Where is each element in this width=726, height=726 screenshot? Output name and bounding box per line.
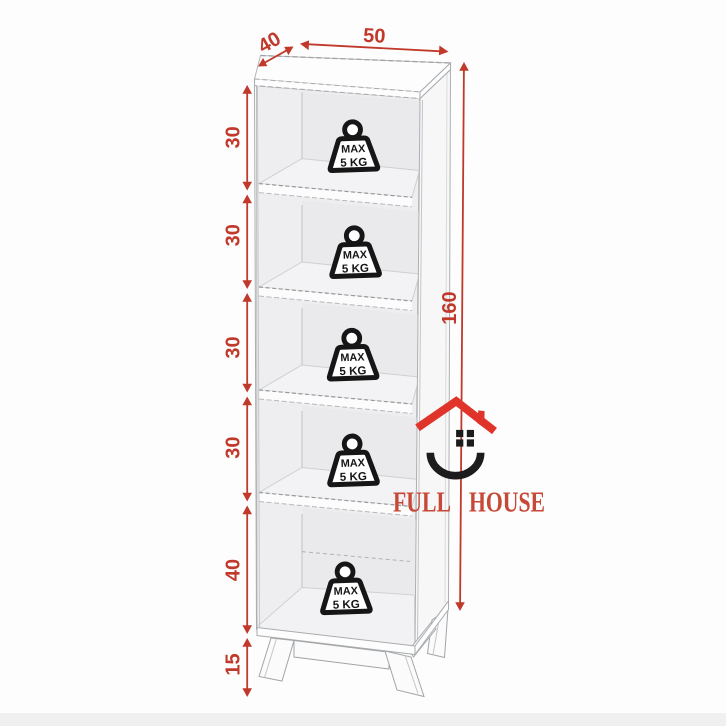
svg-text:MAX: MAX [333, 585, 358, 598]
svg-text:30: 30 [223, 436, 245, 458]
svg-text:40: 40 [223, 559, 245, 581]
svg-text:5 KG: 5 KG [339, 364, 366, 378]
svg-text:MAX: MAX [340, 351, 365, 364]
svg-text:FULL: FULL [393, 488, 451, 519]
svg-text:MAX: MAX [341, 143, 366, 156]
svg-text:5 KG: 5 KG [340, 156, 367, 170]
svg-text:30: 30 [223, 126, 245, 148]
svg-text:160: 160 [439, 291, 461, 324]
svg-text:5 KG: 5 KG [340, 470, 367, 484]
svg-text:5 KG: 5 KG [332, 598, 359, 612]
svg-text:15: 15 [223, 653, 245, 675]
svg-text:50: 50 [363, 25, 386, 48]
svg-text:MAX: MAX [341, 457, 366, 470]
svg-text:30: 30 [223, 336, 245, 358]
svg-text:HOUSE: HOUSE [469, 488, 545, 519]
svg-text:30: 30 [223, 224, 245, 246]
svg-text:MAX: MAX [343, 249, 368, 262]
svg-text:5 KG: 5 KG [342, 262, 369, 276]
